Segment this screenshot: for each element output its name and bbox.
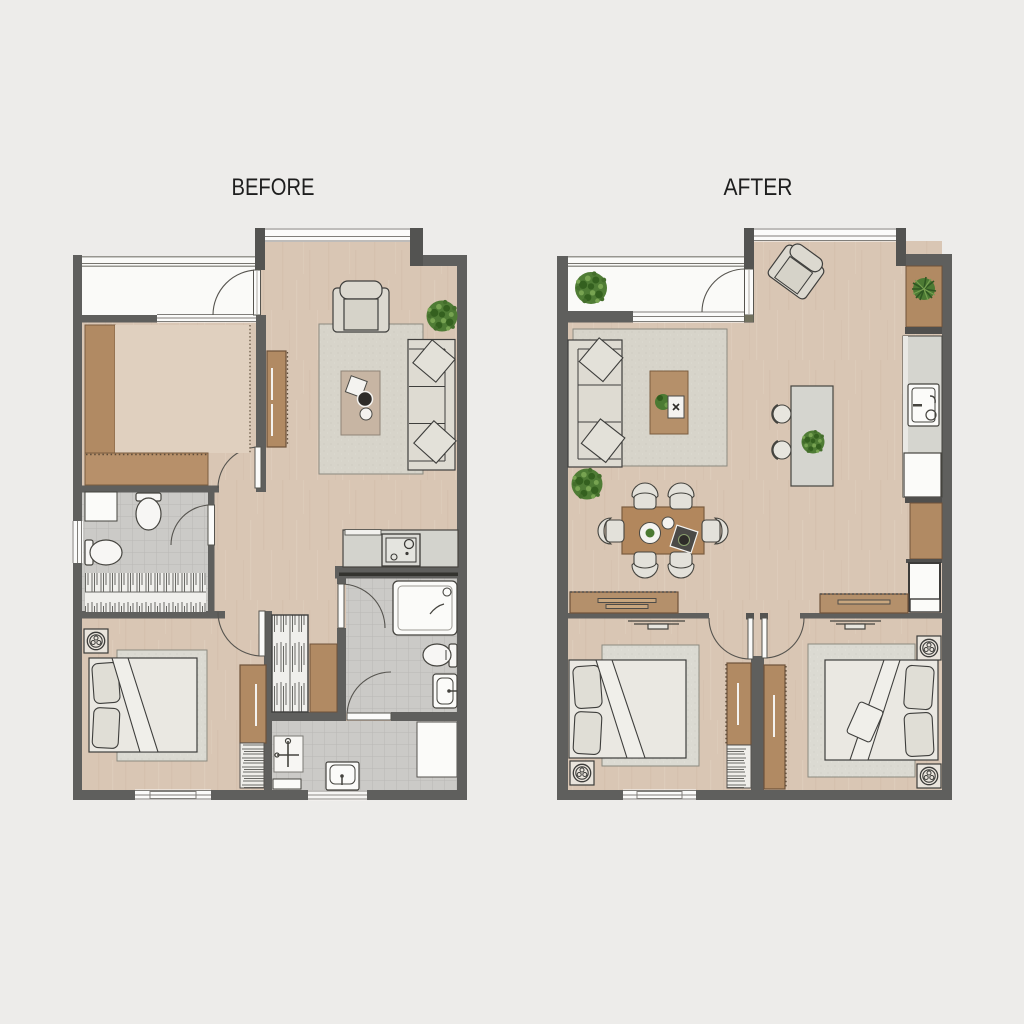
svg-text:AFTER: AFTER (724, 174, 793, 201)
svg-text:BEFORE: BEFORE (232, 174, 315, 201)
